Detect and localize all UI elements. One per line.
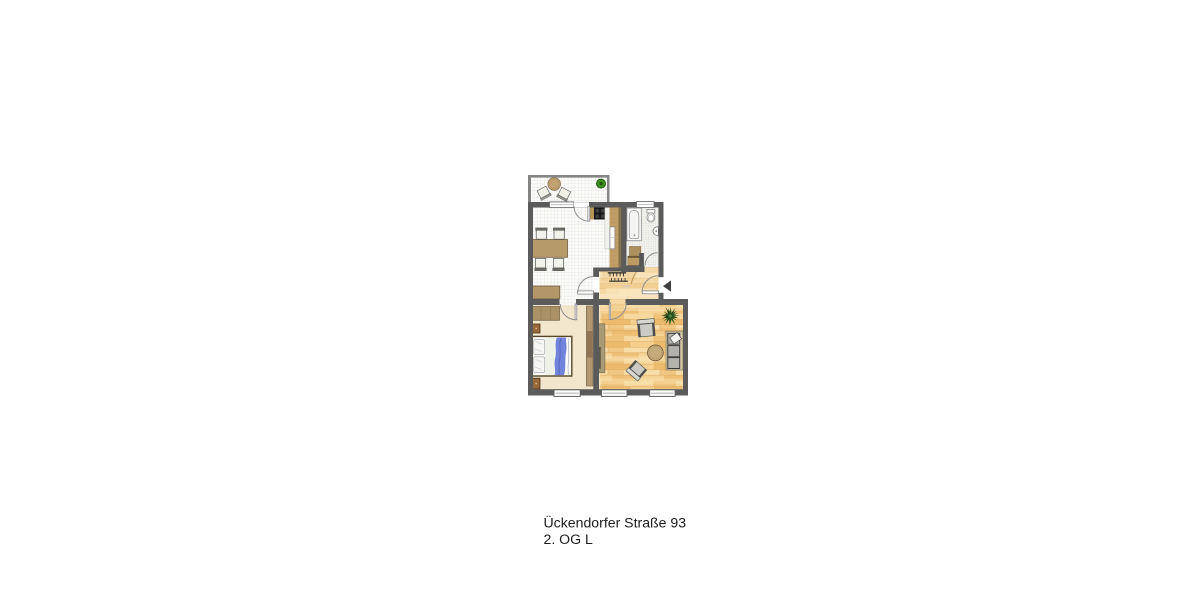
svg-text:Ückendorfer Straße 93: Ückendorfer Straße 93 xyxy=(544,513,687,530)
svg-text:2. OG L: 2. OG L xyxy=(544,531,594,547)
